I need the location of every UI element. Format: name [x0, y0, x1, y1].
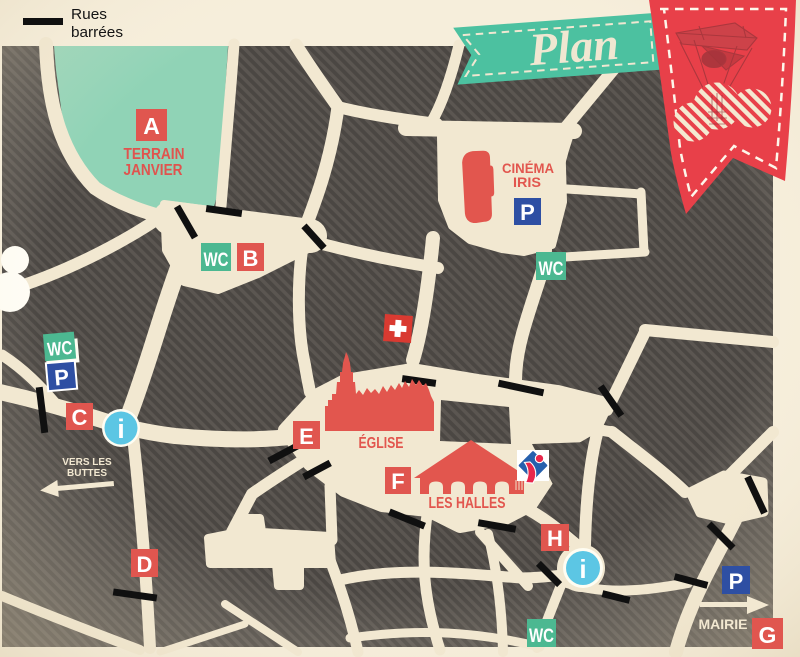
svg-text:A: A	[143, 113, 160, 139]
svg-text:H: H	[547, 526, 563, 551]
svg-text:E: E	[299, 424, 314, 449]
svg-text:WC: WC	[529, 626, 554, 647]
svg-text:TERRAIN: TERRAIN	[124, 146, 185, 163]
svg-text:P: P	[53, 364, 70, 390]
svg-text:i: i	[117, 414, 125, 444]
svg-text:VERS LES: VERS LES	[62, 457, 112, 468]
svg-text:Plan: Plan	[526, 18, 620, 75]
svg-text:B: B	[243, 246, 259, 271]
svg-text:MAIRIE: MAIRIE	[699, 616, 748, 632]
svg-text:LES HALLES: LES HALLES	[429, 495, 506, 512]
svg-text:Rues: Rues	[71, 7, 107, 23]
svg-text:JANVIER: JANVIER	[124, 162, 183, 179]
svg-text:D: D	[137, 552, 153, 577]
svg-text:P: P	[729, 569, 744, 594]
svg-text:WC: WC	[204, 250, 229, 271]
svg-text:IRIS: IRIS	[513, 174, 541, 190]
svg-text:ÉGLISE: ÉGLISE	[359, 433, 404, 452]
svg-text:barrées: barrées	[71, 25, 123, 41]
svg-text:C: C	[72, 405, 88, 430]
svg-text:i: i	[579, 554, 586, 584]
svg-text:WC: WC	[539, 259, 564, 280]
svg-text:P: P	[520, 200, 535, 225]
svg-text:F: F	[391, 469, 404, 494]
svg-text:BUTTES: BUTTES	[67, 468, 107, 479]
svg-text:WC: WC	[46, 338, 73, 361]
svg-text:G: G	[759, 622, 777, 648]
